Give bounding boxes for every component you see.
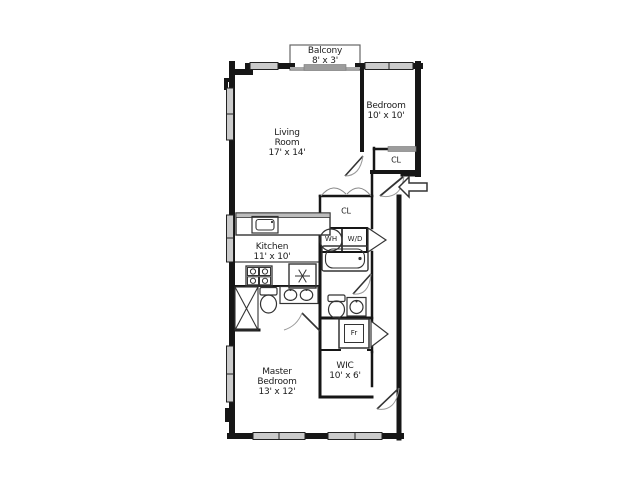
washer-dryer-label: W/D — [348, 236, 363, 244]
master-bath-door — [284, 313, 320, 331]
bedroom-closet-label: CL — [391, 157, 401, 166]
bath-door — [353, 274, 371, 294]
toilet-icon-bath — [328, 295, 345, 318]
shower-icon — [235, 287, 258, 330]
bedroom-dims: 10' x 10' — [366, 111, 405, 121]
bedroom-name: Bedroom — [366, 101, 405, 111]
master-bedroom-dims: 13' x 12' — [257, 387, 296, 397]
laundry-door — [368, 228, 386, 252]
bathtub-icon — [322, 246, 368, 271]
refrigerator-icon — [289, 264, 316, 288]
balcony-label: Balcony 8' x 3' — [308, 36, 342, 76]
double-vanity-icon — [280, 287, 318, 304]
hall-closet-label: CL — [341, 208, 351, 217]
wic-dims: 10' x 6' — [329, 371, 361, 381]
living-room-dims: 17' x 14' — [268, 148, 305, 158]
master-bedroom-label: Master Bedroom 13' x 12' — [257, 357, 296, 407]
balcony-dims: 8' x 3' — [308, 56, 342, 66]
master-bedroom-name: Master Bedroom — [257, 367, 296, 387]
water-heater-label: WH — [325, 236, 337, 244]
toilet-icon-master — [260, 288, 277, 314]
wic-label: WIC 10' x 6' — [329, 351, 361, 391]
kitchen-label: Kitchen 11' x 10' — [253, 232, 290, 272]
bedroom-closet-slider — [388, 147, 416, 152]
wic-name: WIC — [336, 361, 353, 371]
sink-icon-bath — [347, 298, 366, 317]
master-bedroom-door — [377, 388, 399, 409]
floor-plan: Balcony 8' x 3' Bedroom 10' x 10' Living… — [0, 0, 640, 480]
living-room-name: Living Room — [274, 128, 300, 148]
kitchen-name: Kitchen — [256, 242, 288, 252]
living-room-label: Living Room 17' x 14' — [268, 118, 305, 168]
bedroom-door — [345, 156, 363, 176]
fr-door — [371, 321, 388, 347]
bedroom-label: Bedroom 10' x 10' — [366, 91, 405, 131]
kitchen-dims: 11' x 10' — [253, 252, 290, 262]
fr-label: Fr — [351, 330, 357, 338]
balcony-name: Balcony — [308, 46, 342, 56]
